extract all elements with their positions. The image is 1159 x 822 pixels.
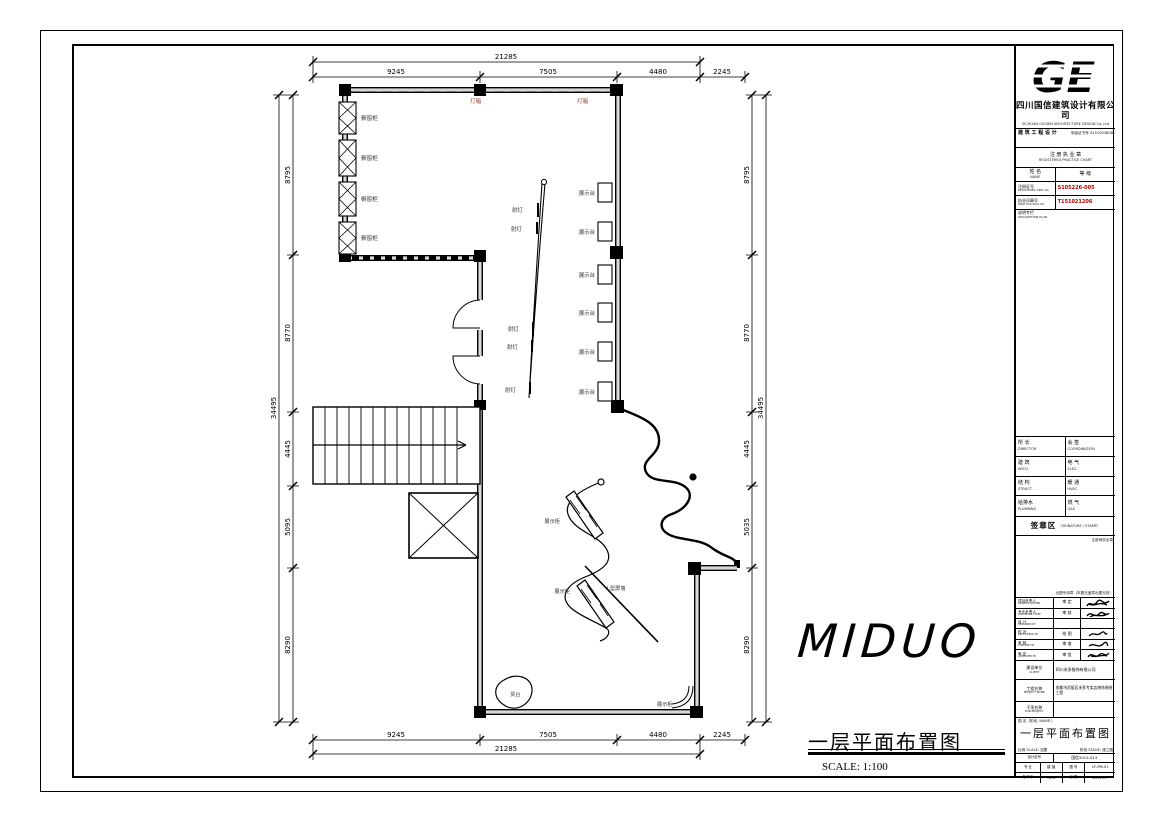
design-cert-label: 设计证号 — [1017, 756, 1052, 760]
date-label: 日 期 — [1064, 776, 1084, 780]
svg-text:4445: 4445 — [743, 440, 751, 458]
signoff-right-label-en: COORDINATION — [1068, 447, 1114, 451]
exterior-walls — [345, 90, 737, 712]
discipline-value: 建 施 — [1042, 765, 1061, 769]
spot-light-label: 射灯 — [505, 386, 516, 394]
sig-role-label-en: CHECKED BY — [1018, 645, 1051, 648]
sig-action-label: 审 查 — [1056, 642, 1079, 647]
svg-text:7505: 7505 — [539, 731, 557, 739]
company-logo: GE — [1026, 52, 1106, 102]
curved-entrance-wall — [618, 408, 737, 563]
drawing-title: 一层平面布置图 — [808, 726, 962, 755]
figure-name-label: 图 名（阶段, NAME:） — [1018, 719, 1055, 723]
light-box-label: 灯箱 — [470, 97, 482, 105]
figure-scale-value: 如图 — [1040, 748, 1047, 752]
description-label-en: DESCRIPTION PLAN — [1018, 216, 1047, 219]
svg-text:5035: 5035 — [743, 518, 751, 536]
client-value: 四川米多服饰有限公司 — [1056, 668, 1113, 673]
svg-text:9245: 9245 — [387, 68, 405, 76]
cert-number: 甲级证书号 A151003808 — [1071, 131, 1113, 137]
signoff-left-label-en: DIRECTOR — [1018, 447, 1063, 451]
sig-role-label-en: PROOFREAD BY — [1018, 634, 1051, 637]
display-stand-label: 展示台 — [579, 309, 595, 317]
spot-light-label: 射灯 — [512, 206, 523, 214]
reg-grade-label: 等 级 — [1058, 172, 1113, 178]
registrar-seal-note: 注册师执业章 — [1091, 538, 1113, 542]
seal-no-value: T151021206 — [1058, 200, 1113, 206]
sig-role-label-en: DISCIPLINE CHIEF — [1018, 614, 1051, 617]
door-swings — [453, 300, 480, 384]
display-stands — [598, 183, 612, 401]
columns — [339, 84, 703, 718]
sub-project-label-en: SUB-PROJECT — [1018, 710, 1051, 713]
rev-value: 01.0 — [1042, 776, 1061, 780]
svg-text:8795: 8795 — [743, 166, 751, 184]
signoff-right-label-en: HVAC — [1068, 487, 1114, 491]
signature-scribble — [1085, 610, 1111, 618]
signature-scribble — [1086, 651, 1110, 659]
svg-text:21285: 21285 — [495, 53, 517, 61]
signature-scribble — [1085, 599, 1111, 607]
drawing-sheet: 橱窗柜 橱窗柜 橱窗柜 橱窗柜 灯箱 灯箱 射灯 射灯 射灯 射灯 射灯 — [0, 0, 1159, 822]
spot-light-label: 射灯 — [511, 225, 522, 233]
display-cabinet-label: 展示柜 — [554, 587, 570, 595]
svg-text:9245: 9245 — [387, 731, 405, 739]
discipline-label: 专 业 — [1017, 766, 1039, 770]
title-block: GE 四川国信建筑设计有限公司 SICHUAN GUOXIN ARCHITECT… — [1014, 46, 1113, 776]
reg-cert-label-en: REGISTERED CERT No. — [1018, 189, 1053, 192]
sig-action-label: 审 核 — [1056, 611, 1079, 616]
stamp-zone-title-en: （SIGNATURE / STAMP） — [1058, 524, 1100, 528]
signature-scribble — [1087, 641, 1109, 649]
design-cert-value: 国信2012-013 — [1055, 756, 1114, 760]
svg-text:2245: 2245 — [713, 731, 731, 739]
svg-text:4480: 4480 — [649, 68, 667, 76]
project-name-value: 成都市武侯区米多专卖店装饰装修工程 — [1056, 686, 1113, 695]
display-cabinet-label: 展示柜 — [657, 700, 673, 708]
display-stand-label: 展示台 — [579, 189, 595, 197]
drawing-scale: SCALE: 1:100 — [822, 761, 888, 773]
svg-text:34495: 34495 — [270, 397, 278, 419]
project-name-label-en: PROJECT NAME — [1018, 691, 1051, 694]
sig-role-label-en: PROJECT LEADER — [1018, 603, 1051, 606]
counter-island: 货台 — [496, 676, 532, 708]
sig-action-label: 绘 图 — [1056, 632, 1079, 637]
figure-title: 一层平面布置图 — [1016, 728, 1115, 741]
drawing-caption: 一层平面布置图SCALE: 1:100 — [808, 726, 1008, 774]
signoff-right-label-en: ELEC. — [1068, 467, 1114, 471]
display-cabinet-label: 展示柜 — [544, 517, 560, 525]
window-box-label: 橱窗柜 — [361, 195, 378, 203]
caption-underline-thick — [808, 752, 1005, 755]
central-display-wall — [529, 179, 547, 398]
signoff-left-label-en: PLUMBING — [1018, 507, 1063, 511]
display-stand-label: 展示台 — [579, 348, 595, 356]
svg-text:7505: 7505 — [539, 68, 557, 76]
display-stand-label: 展示台 — [579, 388, 595, 396]
svg-text:21285: 21285 — [495, 745, 517, 753]
display-stand-label: 展示台 — [579, 228, 595, 236]
cert-type: 建 筑 工 程 设 计 — [1018, 131, 1057, 137]
window-box-label: 橱窗柜 — [361, 114, 378, 122]
sig-role-label-en: APPROVED BY — [1018, 656, 1051, 659]
svg-text:8795: 8795 — [284, 166, 292, 184]
dwg-no-value: 1F-PM-01 — [1086, 765, 1114, 769]
floor-plan-canvas: 橱窗柜 橱窗柜 橱窗柜 橱窗柜 灯箱 灯箱 射灯 射灯 射灯 射灯 射灯 — [0, 0, 1159, 822]
entrance-point-marker — [689, 473, 696, 480]
light-box-label: 灯箱 — [577, 97, 589, 105]
svg-text:8290: 8290 — [743, 636, 751, 654]
signoff-left-label-en: ARCH. — [1018, 467, 1063, 471]
figure-scale-label: 比例 SCALE: — [1018, 748, 1039, 752]
svg-text:34495: 34495 — [757, 397, 765, 419]
practice-chart-title-en: REGISTERED PRACTICE CHART — [1016, 158, 1115, 162]
signature-scribble — [1087, 630, 1109, 638]
dwg-no-label: 图 号 — [1064, 766, 1084, 770]
reg-name-label-en: NAME — [1018, 175, 1053, 179]
company-name: 四川国信建筑设计有限公司 — [1016, 102, 1115, 122]
screen-wall-label: L型屏墙 — [607, 584, 625, 592]
display-stand-label: 展示台 — [579, 271, 595, 279]
svg-text:4480: 4480 — [649, 731, 667, 739]
svg-text:5095: 5095 — [284, 518, 292, 536]
spot-light-label: 射灯 — [507, 343, 518, 351]
signoff-right-label-en: GAS — [1068, 507, 1114, 511]
reg-cert-value: S105226-005 — [1058, 186, 1113, 192]
rev-label: 版本号 — [1017, 776, 1039, 780]
stage-value: 施工图 — [1102, 748, 1113, 752]
elevator — [409, 493, 478, 558]
window-box-label: 橱窗柜 — [361, 234, 378, 242]
svg-text:货台: 货台 — [510, 690, 520, 698]
svg-text:8290: 8290 — [284, 636, 292, 654]
svg-text:4445: 4445 — [284, 440, 292, 458]
svg-text:2245: 2245 — [713, 68, 731, 76]
sig-action-label: 审 定 — [1056, 600, 1079, 605]
brand-logo-text: MIDUO — [795, 614, 1030, 684]
window-box-label: 橱窗柜 — [361, 154, 378, 162]
seal-no-label-en: PRACTICE SEAL No. — [1018, 203, 1053, 206]
corner-fillet — [672, 686, 693, 708]
spot-light-label: 射灯 — [508, 325, 519, 333]
signoff-left-label-en: STRUCT. — [1018, 487, 1063, 491]
sig-role-label-en: DESIGNED BY — [1018, 624, 1051, 627]
sig-action-label: 审 批 — [1056, 653, 1079, 658]
client-label-en: CLIENT — [1018, 671, 1051, 674]
svg-text:8770: 8770 — [743, 324, 751, 342]
stage-label: 阶段 STAGE: — [1080, 748, 1101, 752]
caption-underline-thin — [808, 749, 1005, 750]
staircase — [313, 407, 480, 484]
company-name-en: SICHUAN GUOXIN ARCHITECTURE DESIGN Co.,L… — [1016, 122, 1115, 126]
s-curve-display — [565, 479, 658, 642]
plot-stamp-note: 出图专用章（本图无盖章出图无效） — [1056, 591, 1114, 595]
svg-text:8770: 8770 — [284, 324, 292, 342]
stamp-zone-title: 签章区 — [1031, 522, 1057, 531]
date-value: 2012.07 — [1086, 776, 1114, 780]
